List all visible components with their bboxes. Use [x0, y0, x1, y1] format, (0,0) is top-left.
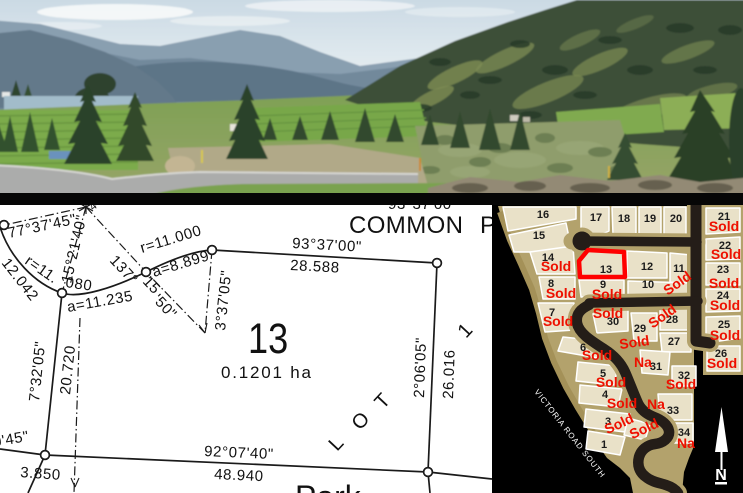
svg-text:27: 27 [668, 336, 680, 348]
svg-text:3.850: 3.850 [20, 464, 62, 484]
svg-text:Sold: Sold [711, 246, 741, 262]
svg-text:13: 13 [600, 264, 612, 276]
svg-text:N: N [715, 467, 727, 484]
svg-text:12: 12 [641, 261, 653, 273]
svg-text:Sold: Sold [709, 275, 739, 291]
svg-text:19: 19 [644, 213, 656, 225]
svg-text:Sold: Sold [593, 305, 623, 321]
svg-text:Sold: Sold [596, 374, 626, 390]
svg-text:Sold: Sold [607, 395, 637, 411]
svg-text:Sold: Sold [666, 376, 696, 392]
svg-text:20: 20 [670, 213, 682, 225]
svg-text:Na: Na [677, 435, 695, 451]
svg-text:13: 13 [248, 315, 288, 363]
svg-text:COMMON: COMMON [349, 212, 463, 239]
svg-text:17: 17 [590, 212, 602, 224]
svg-text:Sold: Sold [582, 347, 612, 363]
svg-text:28.588: 28.588 [290, 257, 340, 277]
svg-text:Na: Na [647, 396, 665, 412]
svg-text:Sold: Sold [543, 313, 573, 329]
svg-text:Sold: Sold [709, 218, 739, 234]
svg-text:0.1201 ha: 0.1201 ha [221, 363, 312, 382]
svg-text:Sold: Sold [592, 286, 622, 302]
svg-text:Sold: Sold [707, 355, 737, 371]
svg-text:48.940: 48.940 [214, 466, 264, 485]
svg-text:26.016: 26.016 [440, 349, 459, 399]
svg-text:10: 10 [642, 279, 654, 291]
svg-text:Sold: Sold [541, 258, 571, 274]
svg-text:16: 16 [537, 209, 549, 221]
svg-text:92°07'40": 92°07'40" [204, 443, 274, 463]
svg-text:Sold: Sold [710, 297, 740, 313]
svg-text:15: 15 [533, 230, 545, 242]
svg-text:Park: Park [295, 479, 362, 493]
svg-text:Sold: Sold [710, 327, 740, 343]
svg-text:2°06'05": 2°06'05" [411, 337, 430, 398]
svg-text:18: 18 [618, 213, 630, 225]
svg-text:Sold: Sold [546, 285, 576, 301]
svg-text:Na: Na [634, 354, 652, 370]
svg-text:33: 33 [667, 405, 679, 417]
svg-text:1: 1 [601, 439, 607, 451]
svg-text:P: P [480, 212, 492, 239]
